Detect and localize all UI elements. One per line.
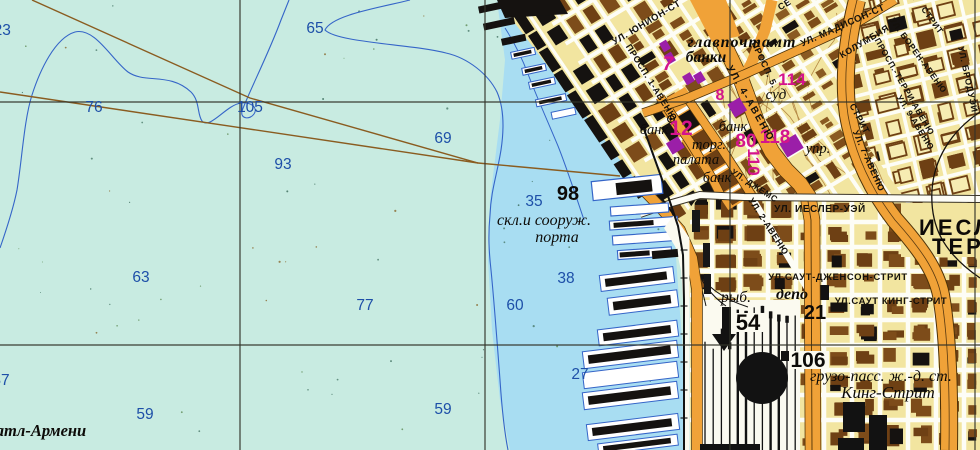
svg-text:порта: порта [535,229,579,246]
svg-text:93: 93 [274,156,291,173]
svg-text:7: 7 [663,54,675,75]
svg-text:77: 77 [356,297,373,314]
svg-text:76: 76 [85,99,102,116]
svg-text:упр.: упр. [804,141,831,157]
svg-text:106: 106 [790,349,825,372]
svg-text:54: 54 [736,310,761,335]
svg-text:8: 8 [716,87,725,104]
svg-text:63: 63 [132,269,149,286]
svg-text:палата: палата [673,152,719,168]
svg-text:114: 114 [778,70,806,89]
svg-text:69: 69 [434,130,451,147]
svg-text:65: 65 [306,20,323,37]
svg-text:98: 98 [557,183,579,205]
svg-text:Кинг-Стрит: Кинг-Стрит [840,383,935,402]
svg-text:банк: банк [640,122,669,138]
svg-text:УЛ.САУТ КИНГ-СТРИТ: УЛ.САУТ КИНГ-СТРИТ [835,296,948,307]
svg-text:УЛ. ИЕСЛЕР-УЭЙ: УЛ. ИЕСЛЕР-УЭЙ [774,202,866,215]
svg-text:банки: банки [686,49,727,66]
svg-text:110: 110 [744,148,763,175]
svg-text:депо: депо [776,286,808,303]
svg-text:59: 59 [434,401,451,418]
svg-text:123: 123 [0,22,11,39]
svg-text:скл.и сооруж.: скл.и сооруж. [497,212,591,229]
svg-text:торг.: торг. [692,137,726,153]
svg-text:21: 21 [804,302,826,324]
svg-text:27: 27 [571,366,588,383]
svg-text:УЛ.САУТ-ДЖЕНСОН-СТРИТ: УЛ.САУТ-ДЖЕНСОН-СТРИТ [768,272,907,283]
svg-text:105: 105 [237,99,263,116]
svg-text:атл-Армени: атл-Армени [0,421,86,440]
svg-text:87: 87 [0,372,10,389]
svg-text:суд: суд [766,87,787,103]
svg-text:35: 35 [525,193,542,210]
svg-text:ТЕРРАС: ТЕРРАС [932,234,980,259]
svg-text:60: 60 [506,297,524,314]
svg-text:59: 59 [136,406,153,423]
svg-text:38: 38 [557,270,574,287]
svg-text:рыб.: рыб. [720,289,751,306]
svg-text:банк: банк [703,170,732,186]
